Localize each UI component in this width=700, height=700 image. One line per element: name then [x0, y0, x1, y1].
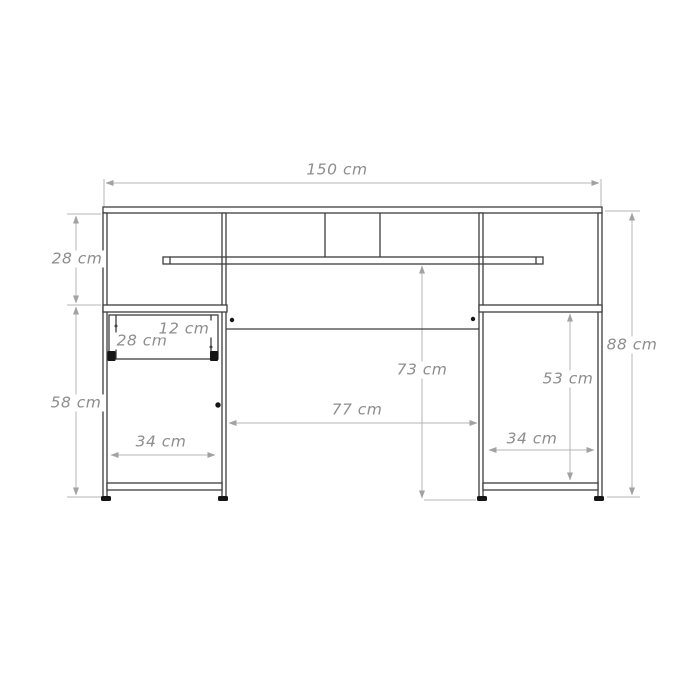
dim-label-hutch-height: 28 cm — [49, 250, 106, 267]
dim-label-total-height: 88 cm — [604, 336, 661, 353]
left-cabinet-bottom-shelf — [107, 483, 222, 490]
right-cabinet-top — [479, 305, 602, 312]
drawer-slide-bracket — [108, 351, 116, 361]
right-cabinet-bottom-shelf — [483, 483, 598, 490]
screw-icon — [471, 317, 475, 321]
door-knob — [215, 402, 220, 407]
desk-top-panel — [103, 207, 602, 213]
dim-label-right-inner-height: 53 cm — [540, 370, 597, 387]
dim-label-shelf-to-floor: 73 cm — [394, 361, 451, 378]
foot — [218, 496, 228, 501]
dim-label-drawer-height: 12 cm — [156, 320, 213, 337]
left-cabinet-top — [103, 305, 227, 312]
dim-label-right-cabinet-width: 34 cm — [504, 430, 561, 447]
foot — [101, 496, 111, 501]
dim-label-total-width: 150 cm — [303, 161, 370, 178]
drawer-slide-bracket — [210, 351, 218, 361]
screw-icon — [230, 318, 234, 322]
right-cabinet-inner-panel — [479, 213, 483, 497]
foot — [594, 496, 604, 501]
desk-line-drawing — [0, 0, 700, 700]
foot — [477, 496, 487, 501]
drawer-slide-screw-icon — [210, 346, 213, 349]
right-cabinet-outer-panel — [598, 213, 602, 497]
monitor-shelf — [163, 257, 543, 264]
desk-dimension-diagram: 150 cm 28 cm 58 cm 88 cm 73 cm 77 cm 53 … — [0, 0, 700, 700]
dim-label-middle-opening-width: 77 cm — [329, 401, 386, 418]
dim-label-lower-left-height: 58 cm — [48, 394, 105, 411]
desk-structure — [103, 207, 602, 497]
drawer-slide-screw-icon — [115, 325, 118, 328]
left-cabinet-inner-panel — [222, 213, 226, 497]
dim-label-left-cabinet-width: 34 cm — [133, 433, 190, 450]
